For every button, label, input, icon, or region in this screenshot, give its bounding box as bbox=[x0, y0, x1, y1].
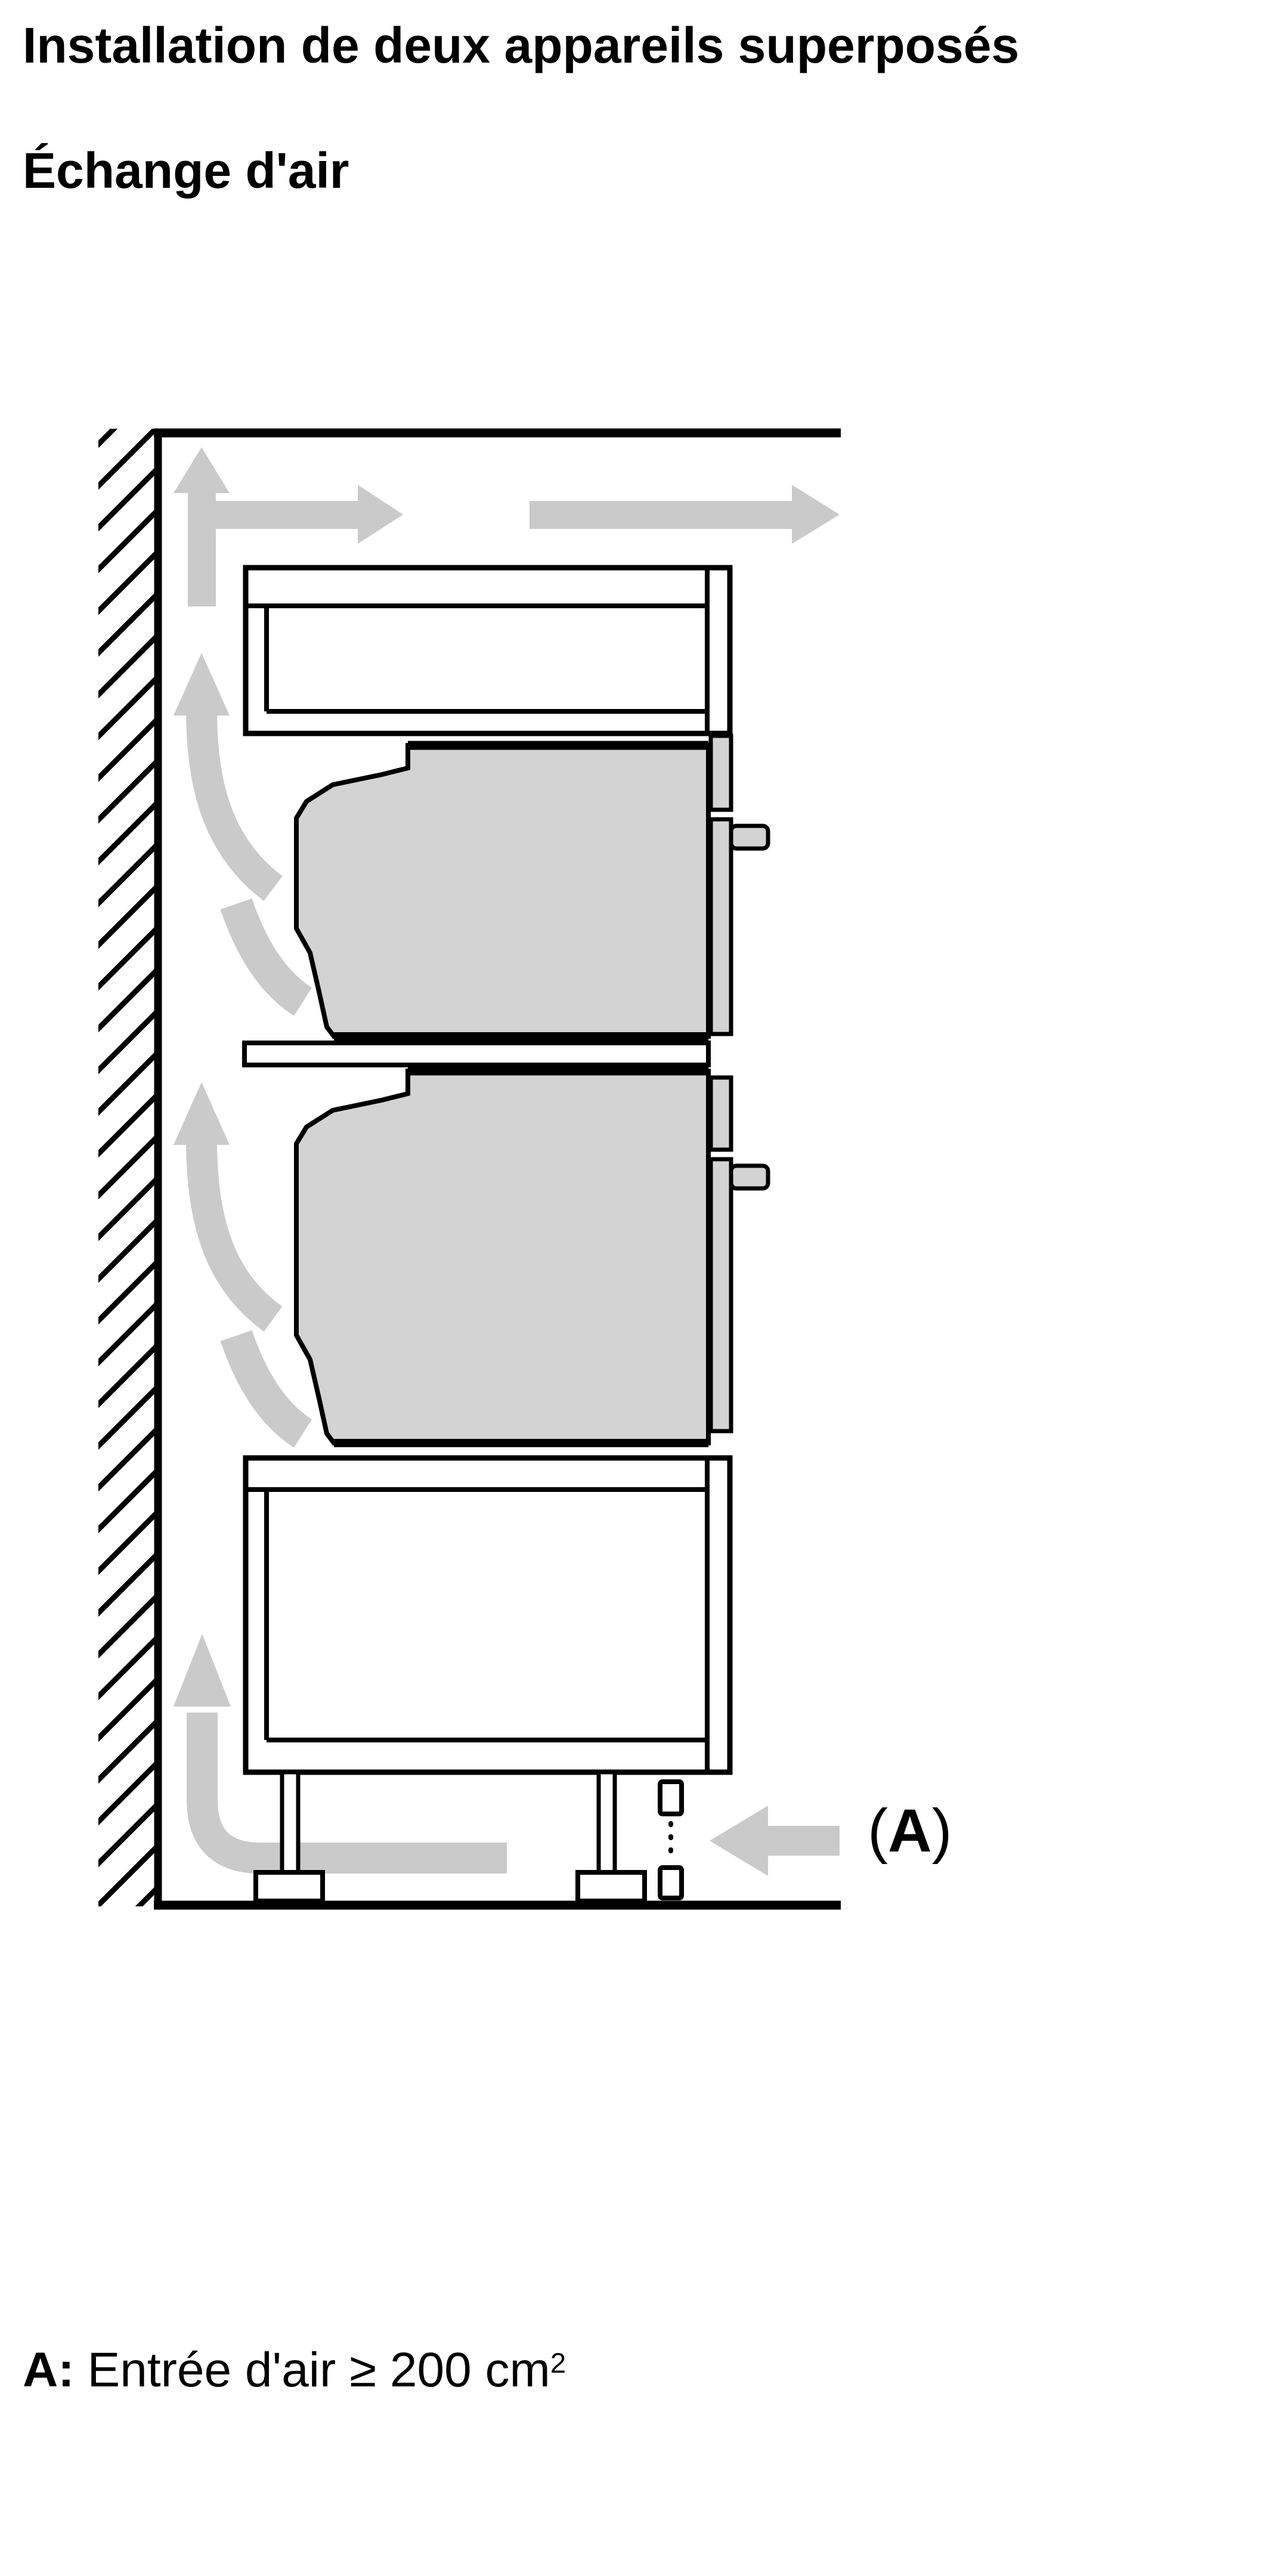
upper-oven-door bbox=[711, 819, 731, 1034]
wall-hatching bbox=[98, 429, 158, 1906]
caption-key: A: bbox=[23, 2343, 75, 2397]
label-letter-a: A bbox=[888, 1797, 932, 1865]
lower-oven-body bbox=[296, 1071, 708, 1443]
left-foot bbox=[256, 1872, 323, 1901]
right-foot bbox=[578, 1872, 645, 1901]
label-paren-close: ) bbox=[932, 1797, 952, 1865]
lower-oven-handle bbox=[731, 1166, 768, 1188]
label-paren-open: ( bbox=[868, 1797, 888, 1865]
left-leg bbox=[282, 1772, 298, 1872]
air-inlet-label: (A) bbox=[868, 1796, 952, 1866]
upper-oven-front-trim bbox=[711, 736, 731, 810]
base-cabinet bbox=[246, 1458, 730, 1772]
plinth-vent-slots bbox=[660, 1782, 682, 1898]
airflow-right-arrow-short bbox=[213, 485, 403, 544]
installation-diagram bbox=[0, 0, 1288, 2576]
upper-oven bbox=[296, 736, 768, 1036]
caption-superscript: 2 bbox=[550, 2348, 566, 2379]
right-leg bbox=[599, 1772, 615, 1872]
lower-oven bbox=[296, 1071, 768, 1443]
figure-caption: A:Entrée d'air ≥ 200 cm2 bbox=[23, 2342, 566, 2398]
air-inlet-arrow bbox=[710, 1806, 840, 1876]
lower-oven-front-trim bbox=[711, 1078, 731, 1150]
shelf-board bbox=[244, 1043, 708, 1065]
cabinet-feet bbox=[256, 1772, 645, 1901]
top-vent-cabinet bbox=[246, 568, 730, 733]
upper-oven-handle bbox=[731, 826, 768, 849]
manual-page: Installation de deux appareils superposé… bbox=[0, 0, 1288, 2576]
lower-oven-door bbox=[711, 1159, 731, 1431]
airflow-swoosh-lower bbox=[174, 1082, 303, 1433]
airflow-right-arrow-long bbox=[530, 485, 840, 544]
caption-text: Entrée d'air ≥ 200 cm bbox=[88, 2343, 550, 2397]
upper-oven-body bbox=[296, 745, 708, 1036]
